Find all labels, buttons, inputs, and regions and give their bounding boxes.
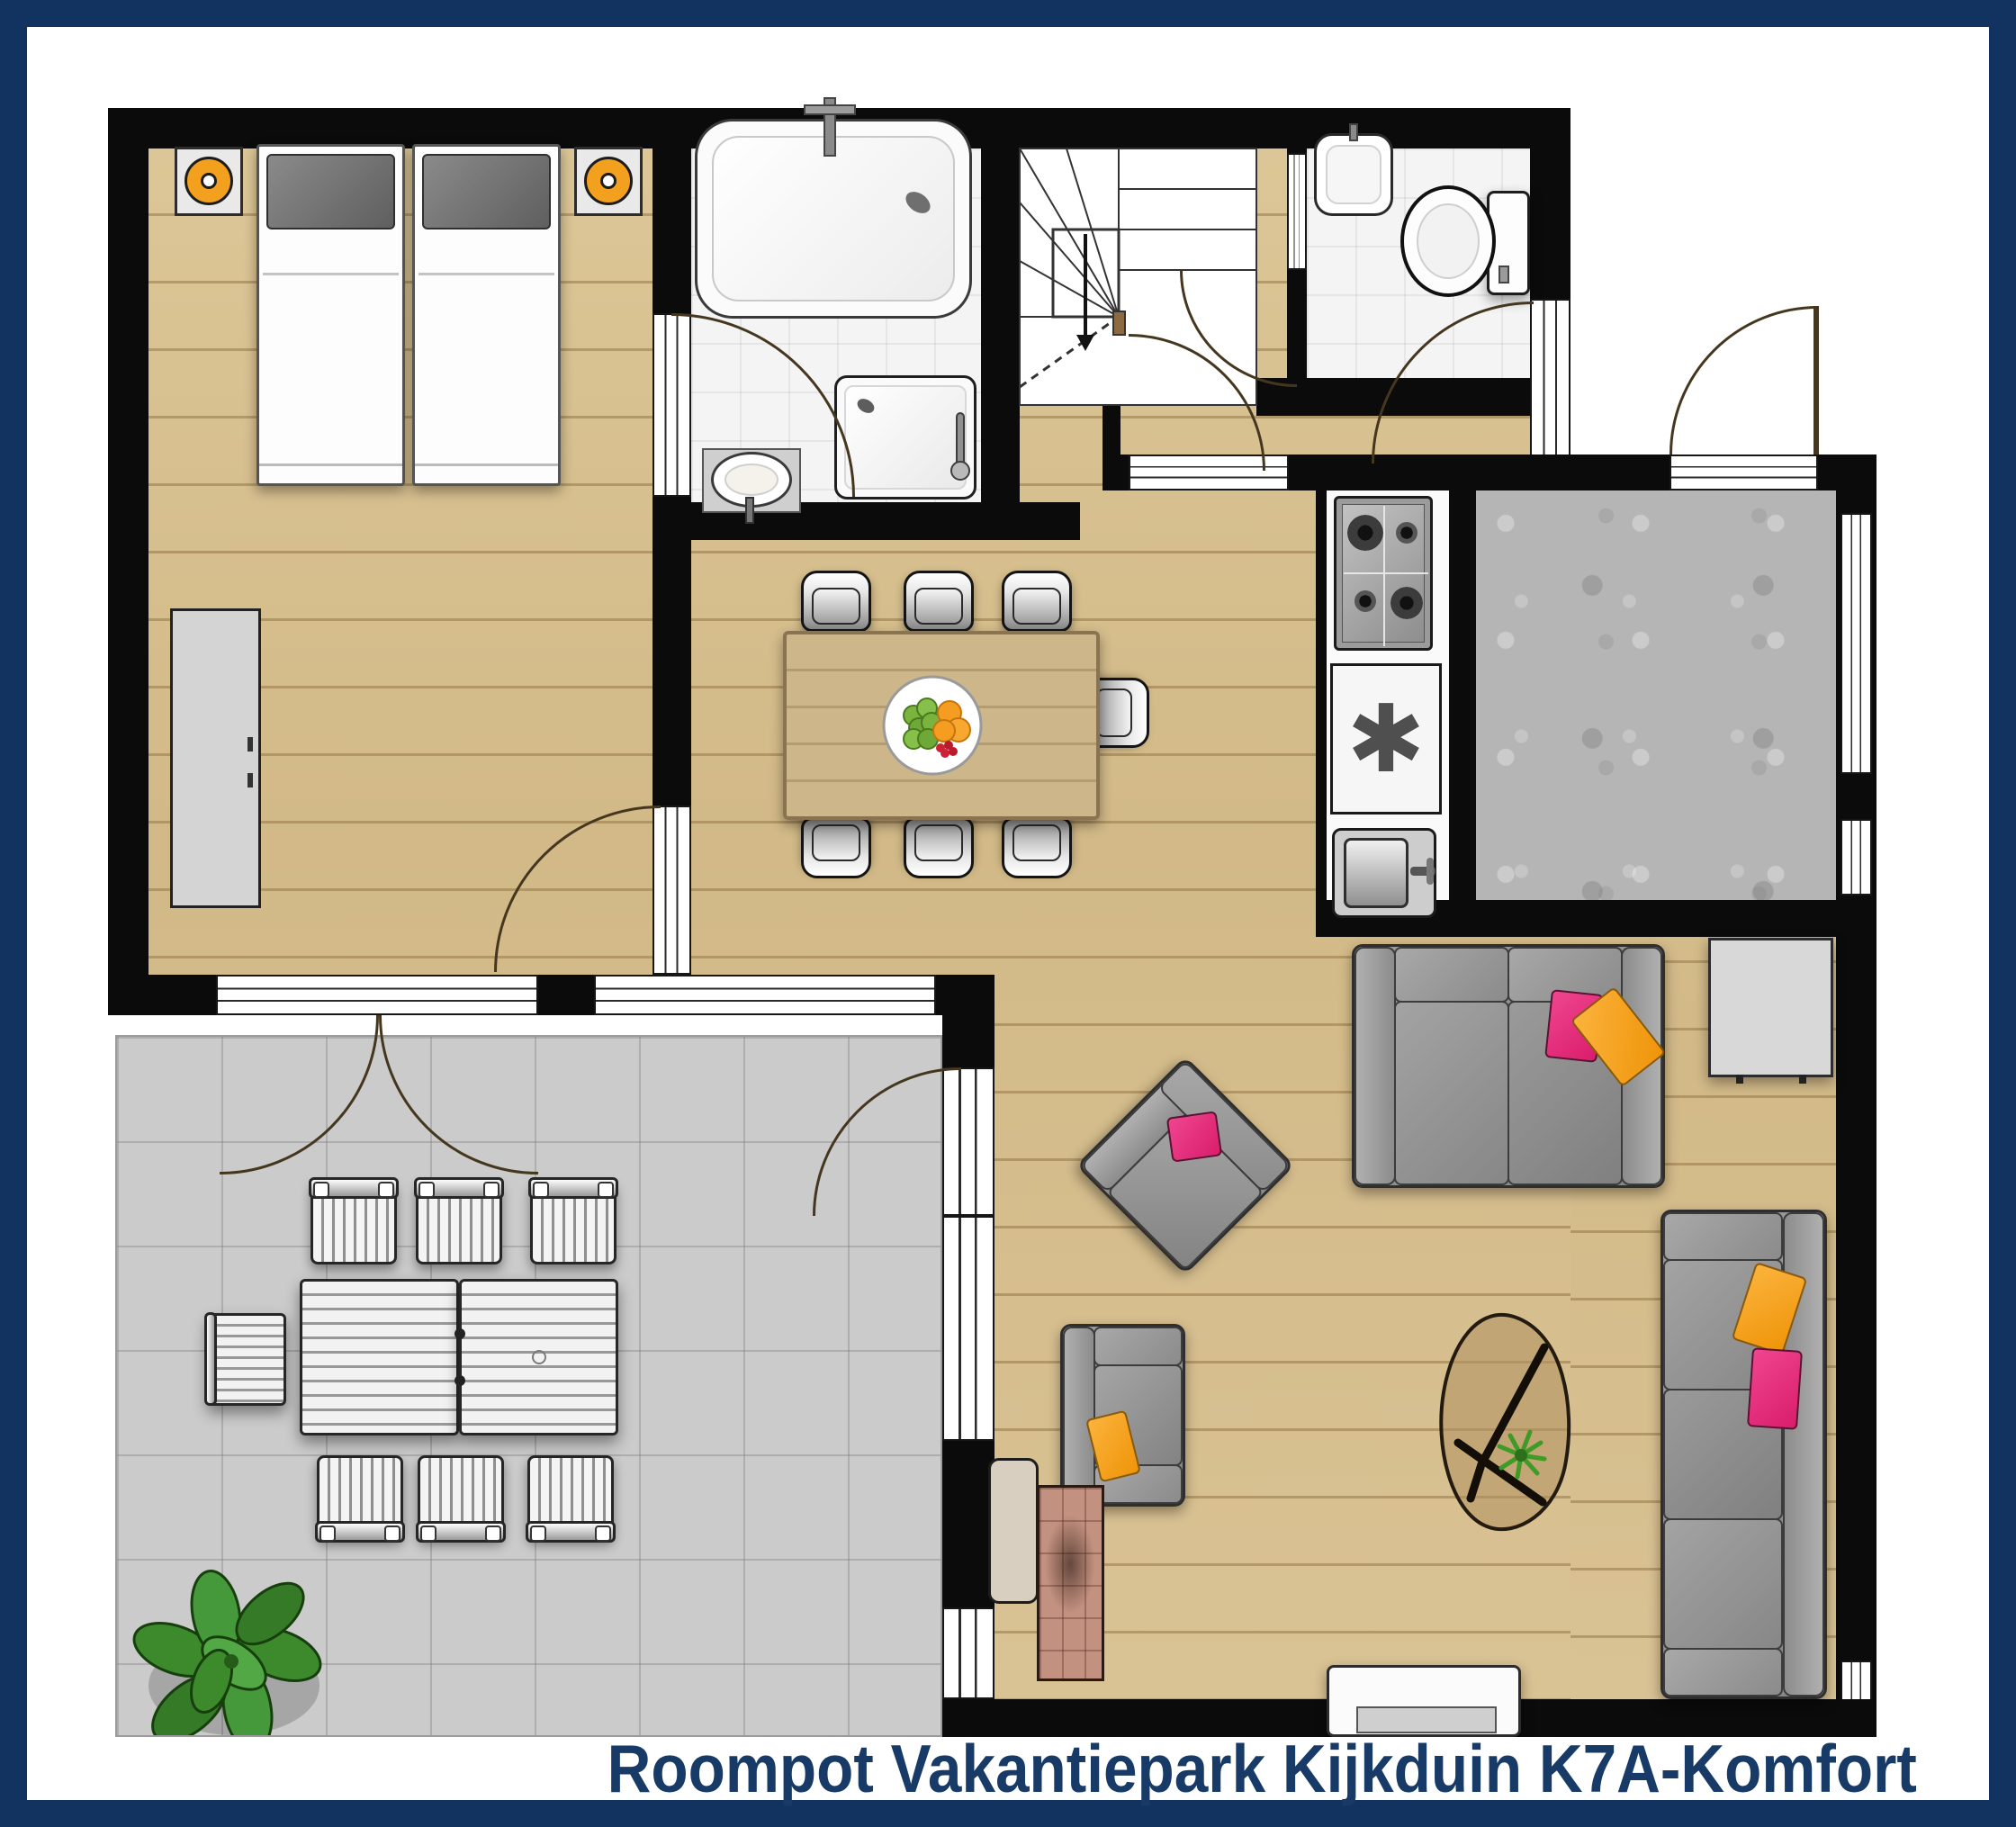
dining-chair [904,817,974,878]
pillow-pink [1747,1347,1803,1430]
wall-hall-right-a [1530,108,1570,299]
wall-bedroom-right-b [652,497,691,805]
wall-south-b [538,975,594,1015]
dining-chair [1002,817,1072,878]
terrace-plant-icon [112,1564,351,1735]
plan-title: Roompot Vakantiepark Kijkduin K7A-Komfor… [607,1735,1917,1802]
pillow-bed-left [266,154,395,229]
terrace-window-a [942,1216,994,1441]
bedside-lamp-right-icon [584,157,633,205]
toilet-bowl [1400,185,1496,297]
fireplace-hearth [1037,1485,1104,1681]
bed-single-left [256,144,405,486]
coffee-table [1431,1309,1586,1542]
wall-kitchen-left [1316,490,1327,937]
terrace-table-left [300,1279,459,1435]
bathtub-faucet-bar-icon [804,104,856,115]
fruit-bowl-icon [877,670,987,780]
shower-tray [834,375,976,499]
porch-door-frame [1669,454,1818,490]
kitchen-sink [1332,828,1436,918]
terrace-chair [527,1455,614,1540]
terrace-chair [530,1180,616,1264]
freezer: ✱ [1330,663,1442,814]
dining-chair [801,817,871,878]
dining-chair [904,571,974,632]
bed-single-right [412,144,561,486]
wood-stove [988,1458,1039,1604]
pillow-bed-right [422,154,551,229]
terrace-table-right [459,1279,618,1435]
burner-icon [1396,522,1417,544]
dining-chair [1002,571,1072,632]
pillow-pink [1166,1111,1222,1162]
wall-fireplace [942,1441,994,1607]
sofa-two-seat [1352,944,1665,1188]
terrace-chair [416,1180,502,1264]
storage-room-floor [1476,490,1836,900]
wall-kitchen-storage [1449,490,1476,900]
sideboard [1708,938,1833,1077]
entrance-door-frame [1530,299,1570,463]
burner-icon [1354,590,1376,612]
shower-handset-icon [956,412,965,468]
terrace-side-table [207,1313,286,1406]
terrace-chair [418,1455,504,1540]
sink-faucet-icon [745,497,754,524]
tv-cabinet [1327,1665,1521,1737]
bedside-lamp-left-icon [184,157,233,205]
burner-icon [1390,587,1423,619]
sofa-long [1660,1210,1827,1699]
porch-door-leaf [1813,306,1819,454]
floorplan-page: ✱ [0,0,2016,1827]
wall-terrace-a [942,1015,994,1067]
wall-south-a [108,975,216,1015]
burner-icon [1347,515,1383,551]
terrace-chair [317,1455,403,1540]
wall-south-c [936,975,994,1015]
terrace-window-b [942,1607,994,1699]
toilet-sink [1314,133,1393,216]
freezer-asterisk-icon: ✱ [1346,684,1425,794]
wall-bedroom-right-a [652,148,691,313]
stove [1334,496,1433,651]
wall-toilet-left-a [1287,108,1307,153]
dining-window [594,975,936,1015]
storage-window-b [1840,819,1872,895]
wall-north-c [1818,454,1876,490]
wardrobe [170,608,261,908]
toilet-sink-faucet-icon [1349,123,1358,141]
dining-chair [801,571,871,632]
wall-left [108,108,148,1015]
toilet-door-frame [1287,153,1307,270]
french-doors-frame [216,975,538,1015]
terrace-chair [310,1180,397,1264]
storage-window-a [1840,513,1872,774]
